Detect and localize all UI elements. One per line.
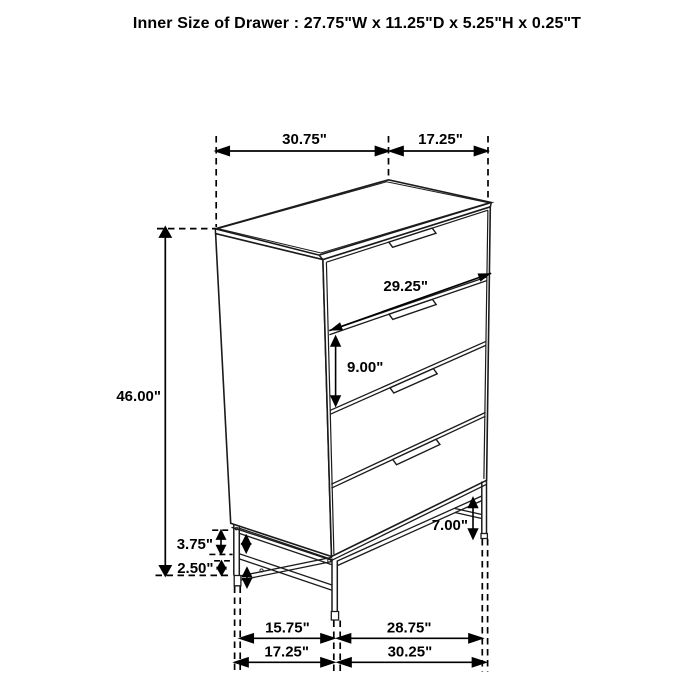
- svg-text:30.75": 30.75": [282, 131, 327, 148]
- svg-text:29.25": 29.25": [383, 278, 428, 295]
- svg-text:7.00": 7.00": [432, 517, 468, 534]
- svg-text:17.25": 17.25": [264, 644, 309, 661]
- svg-text:9.00": 9.00": [347, 359, 383, 376]
- svg-text:28.75": 28.75": [387, 620, 432, 637]
- svg-text:Inner Size of Drawer : 27.75"W: Inner Size of Drawer : 27.75"W x 11.25"D…: [133, 15, 581, 32]
- svg-text:17.25": 17.25": [418, 131, 463, 148]
- svg-text:3.75": 3.75": [177, 536, 213, 553]
- svg-text:2.50": 2.50": [177, 560, 213, 577]
- svg-text:15.75": 15.75": [265, 620, 310, 637]
- svg-text:46.00": 46.00": [116, 388, 161, 405]
- svg-text:30.25": 30.25": [388, 644, 433, 661]
